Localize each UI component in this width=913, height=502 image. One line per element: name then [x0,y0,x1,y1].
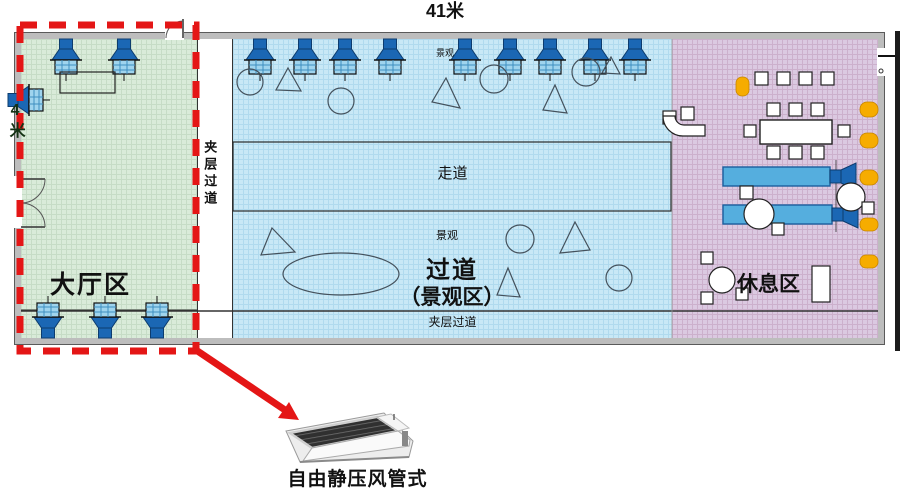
scenic-corridor-zone-label: 过道 （景观区） [352,258,552,309]
scenic-corridor-label-line1: 过道 [352,258,552,284]
adjacent-wall-line [895,31,900,351]
walkway-label: 走道 [400,166,505,183]
mezzanine-bottom-label: 夹层过道 [400,316,505,329]
mezzanine-corridor-vertical-label: 夹层过道 [202,140,216,208]
ac-unit-caption: 自由静压风管式 [270,470,445,491]
scenic-corridor-label-line2: （景观区） [352,286,552,309]
floor-plan-page: { "colors": { "lobby_zone": "#d9ebd9", "… [0,0,913,502]
left-dimension-label: 4米 [6,102,24,141]
rest-zone-label: 休息区 [737,273,827,296]
scenic-label-lower: 景观 [412,230,482,242]
callout-arrow [196,350,299,420]
scenic-label-upper: 景观 [425,49,465,59]
lobby-zone-label: 大厅区 [50,272,170,300]
top-dimension-label: 41米 [395,2,495,22]
duct-ac-unit-image [286,413,413,462]
